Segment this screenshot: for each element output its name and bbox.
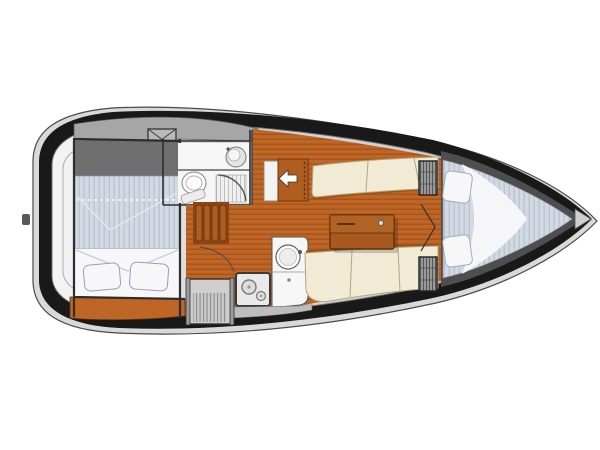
v-berth-pillow-bottom [442, 234, 473, 267]
companionway-steps [186, 278, 234, 325]
aft-pillow-right [129, 262, 169, 292]
steps-rail-left [186, 278, 190, 325]
v-berth-pillow-top [442, 170, 473, 203]
head-door [264, 161, 278, 201]
sailboat-floorplan-svg [0, 0, 600, 450]
steps-treads [193, 293, 227, 322]
aft-pillow-left [83, 262, 121, 291]
locker-port [419, 257, 437, 291]
slat-locker [193, 202, 229, 244]
swim-ladder-icon [22, 214, 30, 225]
aft-wood-shelf [70, 297, 185, 320]
steps-rail-right [230, 278, 234, 325]
locker-starboard [419, 161, 437, 195]
aft-cabin [70, 138, 185, 320]
table-latch [379, 221, 384, 226]
head-shower [216, 175, 246, 202]
galley-stove [236, 273, 270, 306]
entry-cabinet [264, 159, 308, 201]
aft-cabin-top [74, 141, 180, 176]
head-sink [226, 147, 246, 167]
salon-table [330, 215, 398, 253]
floorplan-canvas [0, 0, 600, 450]
